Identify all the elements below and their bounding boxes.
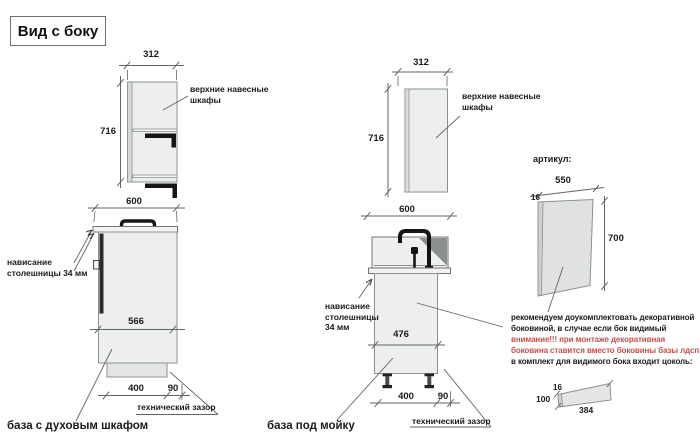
left-plinth	[107, 363, 167, 377]
dim-panel-width: 550	[555, 176, 571, 186]
dim-middle-base-depth: 476	[393, 330, 409, 340]
label-left-tech-gap: технический зазор	[137, 403, 216, 412]
view-title-box: Вид с боку	[10, 16, 106, 46]
dim-middle-upper-width: 312	[413, 58, 429, 68]
dim-middle-upper-height: 716	[356, 134, 384, 144]
dim-plinth-length: 384	[579, 406, 593, 415]
note-line-2: боковиной, в случае если бок видимый	[511, 325, 666, 333]
note-warning-line-1: внимание!!! при монтаже декоративная	[511, 336, 665, 344]
dim-left-upper-width: 312	[143, 50, 159, 60]
note-warning-line-2: боковина ставится вместо боковины базы л…	[511, 347, 699, 355]
caption-middle-base-sink: база под мойку	[267, 421, 355, 433]
oven-door-edge	[100, 234, 104, 314]
dim-left-upper-height: 716	[88, 127, 116, 137]
decor-side-panel	[538, 200, 593, 297]
label-middle-tech-gap: технический зазор	[412, 417, 491, 426]
drawing-linework	[0, 0, 700, 438]
dim-left-gap-width: 90	[168, 384, 179, 394]
middle-arrowhead	[366, 279, 372, 286]
dim-left-base-depth: 566	[128, 317, 144, 327]
left-upper-cabinet	[128, 82, 178, 198]
drawing-canvas: Вид с боку 312 716 верхние навесные шкаф…	[0, 0, 700, 438]
caption-left-base-oven: база с духовым шкафом	[7, 421, 148, 433]
dim-panel-thickness: 16	[531, 194, 540, 202]
dim-plinth-height: 100	[536, 395, 550, 404]
note-line-1: рекомендуем доукомплектовать декоративно…	[511, 314, 694, 322]
label-middle-overhang: нависание столешницы 34 мм	[325, 301, 381, 333]
dim-plinth-thickness: 16	[553, 384, 562, 392]
dim-panel-height: 700	[608, 234, 624, 244]
dim-middle-plinth-width: 400	[398, 392, 414, 402]
label-middle-upper-cabinets: верхние навесные шкафы	[462, 91, 542, 112]
label-left-overhang: нависание столешницы 34 мм	[7, 257, 95, 278]
dim-middle-base-width: 600	[399, 205, 415, 215]
page-title: Вид с боку	[18, 23, 99, 40]
middle-upper-cabinet	[405, 89, 448, 192]
note-line-3: в комплект для видимого бока входит цоко…	[511, 358, 692, 366]
label-left-upper-cabinets: верхние навесные шкафы	[190, 84, 270, 105]
adjustable-legs	[383, 374, 435, 389]
label-article: артикул:	[533, 155, 571, 164]
dim-left-base-width: 600	[126, 197, 142, 207]
left-base-cabinet	[93, 221, 178, 377]
dim-left-plinth-width: 400	[128, 384, 144, 394]
dim-middle-gap-width: 90	[438, 392, 449, 402]
